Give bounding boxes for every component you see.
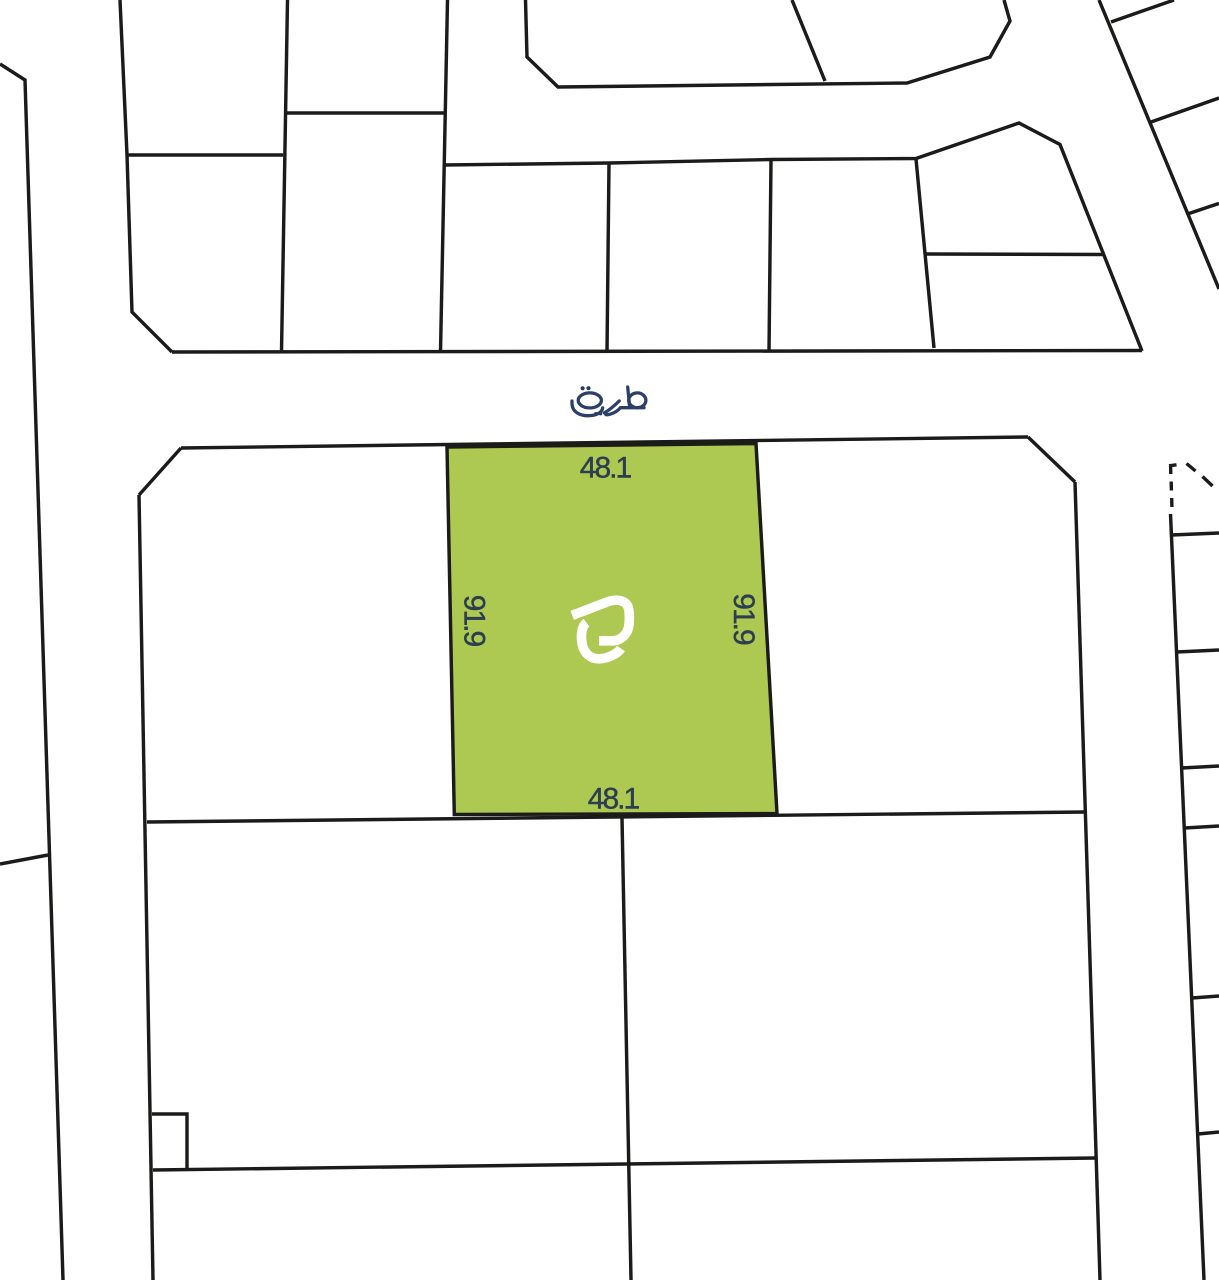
svg-text:48.1: 48.1 — [588, 783, 640, 816]
svg-text:48.1: 48.1 — [580, 452, 632, 485]
svg-text:91.9: 91.9 — [458, 595, 491, 647]
svg-text:91.9: 91.9 — [727, 593, 760, 645]
